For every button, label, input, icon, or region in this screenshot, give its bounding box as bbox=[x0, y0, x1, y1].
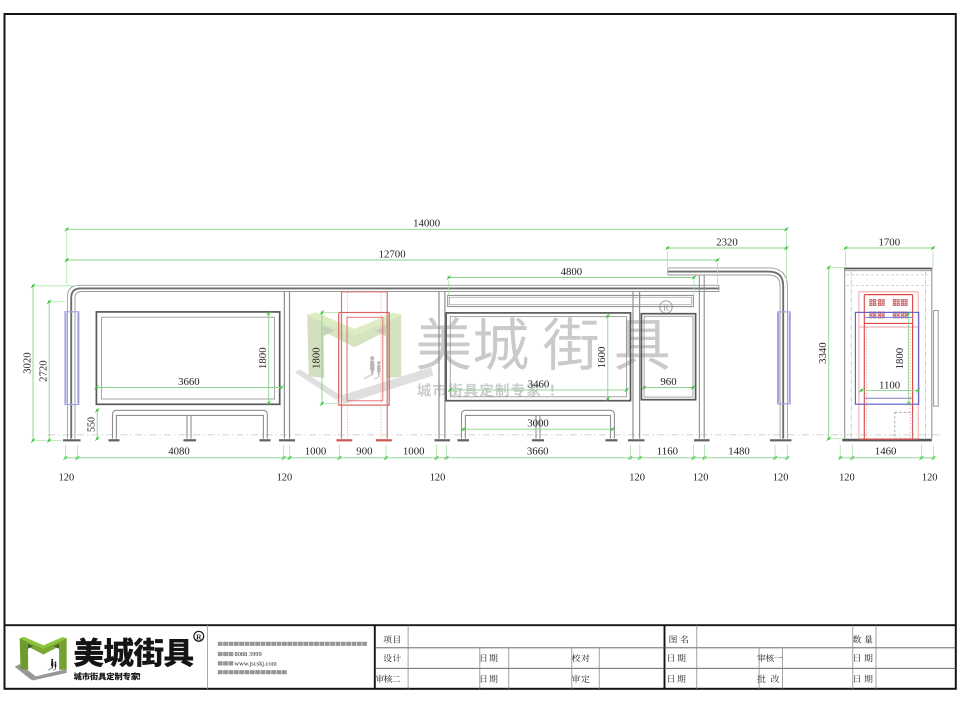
svg-text:1460: 1460 bbox=[875, 446, 897, 458]
svg-text:120: 120 bbox=[839, 473, 855, 484]
svg-text:1000: 1000 bbox=[305, 446, 327, 458]
svg-text:120: 120 bbox=[773, 473, 789, 484]
svg-text:120: 120 bbox=[629, 473, 645, 484]
svg-text:120: 120 bbox=[922, 473, 938, 484]
svg-text:960: 960 bbox=[660, 376, 676, 388]
svg-text:1160: 1160 bbox=[657, 446, 678, 458]
svg-text:2720: 2720 bbox=[38, 360, 50, 382]
svg-text:1700: 1700 bbox=[879, 236, 901, 248]
svg-text:120: 120 bbox=[430, 473, 446, 484]
svg-text:1100: 1100 bbox=[879, 379, 900, 391]
svg-text:1600: 1600 bbox=[596, 347, 608, 369]
svg-text:120: 120 bbox=[59, 473, 75, 484]
svg-text:3460: 3460 bbox=[528, 378, 550, 390]
svg-text:900: 900 bbox=[356, 446, 372, 458]
svg-text:12700: 12700 bbox=[379, 248, 406, 260]
svg-text:120: 120 bbox=[277, 473, 293, 484]
svg-text:8088 3999: 8088 3999 bbox=[235, 651, 262, 658]
svg-text:1000: 1000 bbox=[403, 446, 425, 458]
svg-text:120: 120 bbox=[693, 473, 709, 484]
svg-text:4800: 4800 bbox=[561, 266, 583, 278]
svg-text:550: 550 bbox=[86, 417, 97, 432]
svg-text:1480: 1480 bbox=[728, 446, 750, 458]
svg-text:3000: 3000 bbox=[527, 418, 549, 430]
svg-text:R: R bbox=[196, 633, 202, 642]
svg-text:4080: 4080 bbox=[168, 446, 190, 458]
svg-text:1800: 1800 bbox=[310, 347, 322, 369]
svg-text:3340: 3340 bbox=[817, 342, 829, 364]
svg-text:www.jscskj.com: www.jscskj.com bbox=[235, 661, 277, 668]
svg-text:1800: 1800 bbox=[894, 348, 906, 370]
svg-text:2320: 2320 bbox=[716, 236, 738, 248]
svg-text:14000: 14000 bbox=[413, 218, 440, 230]
svg-text:3020: 3020 bbox=[21, 352, 33, 374]
svg-text:3660: 3660 bbox=[527, 446, 549, 458]
svg-text:1800: 1800 bbox=[257, 347, 269, 369]
svg-text:3660: 3660 bbox=[178, 376, 200, 388]
